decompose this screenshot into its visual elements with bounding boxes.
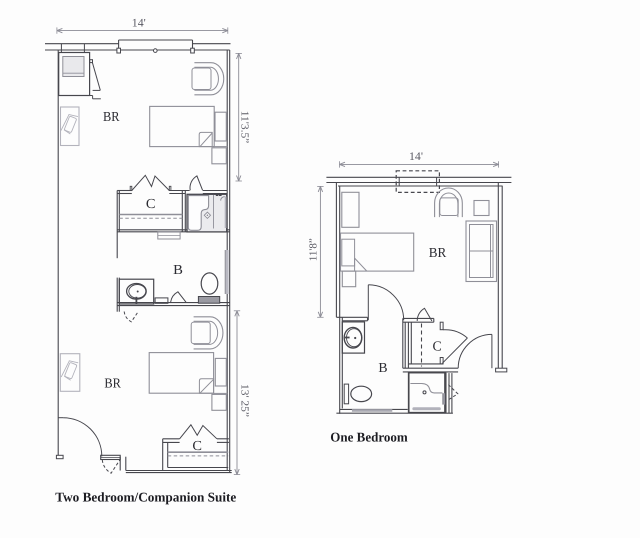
svg-text:BR: BR xyxy=(429,245,447,260)
svg-text:C: C xyxy=(192,438,202,453)
svg-text:One Bedroom: One Bedroom xyxy=(330,430,407,445)
svg-text:C: C xyxy=(146,196,156,211)
svg-text:BR: BR xyxy=(103,109,120,124)
svg-text:BR: BR xyxy=(104,376,121,391)
svg-text:B: B xyxy=(173,262,183,277)
svg-text:Two Bedroom/Companion Suite: Two Bedroom/Companion Suite xyxy=(55,490,236,505)
svg-text:14': 14' xyxy=(132,17,146,29)
svg-text:13' 25”: 13' 25” xyxy=(239,384,251,417)
svg-text:C: C xyxy=(433,339,442,354)
svg-text:11'3.5”: 11'3.5” xyxy=(239,111,251,144)
svg-text:11'8”: 11'8” xyxy=(307,238,319,261)
svg-text:14': 14' xyxy=(409,151,423,163)
svg-text:B: B xyxy=(378,360,387,375)
